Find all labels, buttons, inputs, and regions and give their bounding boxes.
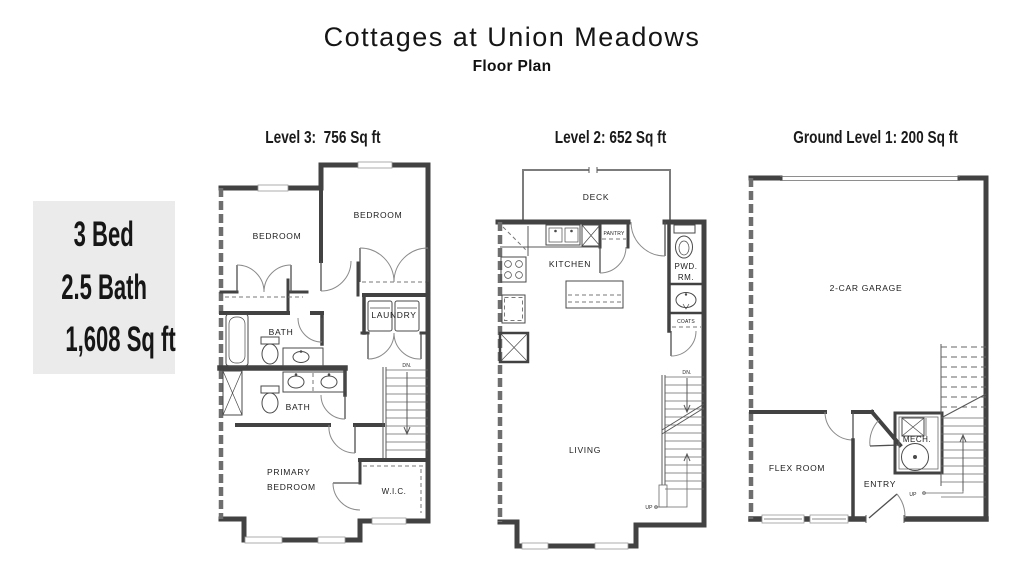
window — [318, 537, 345, 543]
dishwasher-icon — [582, 225, 600, 246]
page-title: Cottages at Union Meadows — [0, 22, 1024, 53]
window — [358, 162, 392, 168]
room-label-coats: COATS — [677, 319, 695, 325]
kitchen-counter — [500, 226, 600, 256]
room-label-pwd-1: PWD. — [675, 262, 698, 271]
room-label-bath-lower: BATH — [286, 402, 311, 412]
toilet-icon — [261, 386, 279, 413]
room-label-primary-1: PRIMARY — [267, 467, 310, 477]
floor-plan-page: Cottages at Union Meadows Floor Plan Lev… — [0, 0, 1024, 576]
room-label-bedroom-right: BEDROOM — [354, 210, 403, 220]
summary-baths: 2.5 Bath — [33, 268, 175, 308]
window — [522, 543, 548, 549]
level2-label: Level 2: 652 Sq ft — [471, 106, 731, 148]
summary-sqft: 1,608 Sq ft — [33, 320, 175, 360]
toilet-icon — [261, 337, 279, 364]
fixtures-level2 — [500, 225, 696, 362]
room-label-garage: 2-CAR GARAGE — [830, 283, 903, 293]
room-label-bedroom-left: BEDROOM — [253, 231, 302, 241]
fixtures-level1 — [902, 418, 929, 471]
vanity-sink-icon — [283, 348, 323, 366]
room-labels-level1: 2-CAR GARAGE FLEX ROOM MECH. ENTRY UP — [769, 283, 931, 498]
island-icon — [566, 281, 623, 308]
room-label-laundry: LAUNDRY — [371, 310, 416, 320]
chase-icon — [500, 333, 528, 362]
stair-label-dn: DN. — [682, 370, 691, 376]
room-label-entry: ENTRY — [864, 479, 896, 489]
room-labels-level2: DECK KITCHEN PANTRY PWD. RM. COATS LIVIN… — [549, 192, 698, 511]
room-label-deck: DECK — [583, 192, 609, 202]
window — [595, 543, 628, 549]
stair-label-dn: DN. — [402, 363, 411, 369]
kitchen-sink-icon — [546, 225, 580, 245]
stove-icon — [501, 257, 526, 282]
room-label-bath-upper: BATH — [269, 327, 294, 337]
level3-label: Level 3: 756 Sq ft — [183, 106, 443, 148]
cabinet-icon — [502, 295, 525, 323]
room-labels-level3: BEDROOM BEDROOM BATH LAUNDRY BATH PRIMAR… — [253, 210, 417, 496]
window — [245, 537, 282, 543]
toilet-icon — [674, 225, 695, 258]
hvac-unit-icon — [902, 418, 926, 436]
floorplan-level1: 2-CAR GARAGE FLEX ROOM MECH. ENTRY UP — [745, 166, 995, 528]
double-vanity-icon — [283, 372, 345, 392]
room-label-pwd-2: RM. — [678, 273, 694, 282]
stair-label-up: UP — [645, 505, 653, 511]
page-subtitle: Floor Plan — [0, 58, 1024, 76]
stair-treads — [665, 377, 704, 489]
room-label-living: LIVING — [569, 445, 601, 455]
window — [258, 185, 288, 191]
linen-chase-icon — [223, 371, 242, 415]
garage-door — [780, 177, 960, 181]
water-heater-icon — [902, 444, 929, 471]
window — [372, 518, 406, 524]
floorplan-level3: BEDROOM BEDROOM BATH LAUNDRY BATH PRIMAR… — [217, 161, 437, 553]
room-label-pantry: PANTRY — [603, 231, 624, 237]
room-label-mech: MECH. — [903, 435, 931, 444]
summary-box: 3 Bed 2.5 Bath 1,608 Sq ft — [33, 201, 175, 374]
pedestal-sink-icon — [676, 293, 696, 310]
floorplan-level2: DECK KITCHEN PANTRY PWD. RM. COATS LIVIN… — [488, 164, 708, 556]
summary-beds: 3 Bed — [33, 215, 175, 255]
level1-label: Ground Level 1: 200 Sq ft — [736, 106, 996, 148]
stair-label-up: UP — [909, 492, 917, 498]
room-label-primary-2: BEDROOM — [267, 482, 316, 492]
room-label-flex: FLEX ROOM — [769, 463, 825, 473]
room-label-wic: W.I.C. — [382, 487, 407, 496]
room-label-kitchen: KITCHEN — [549, 259, 591, 269]
